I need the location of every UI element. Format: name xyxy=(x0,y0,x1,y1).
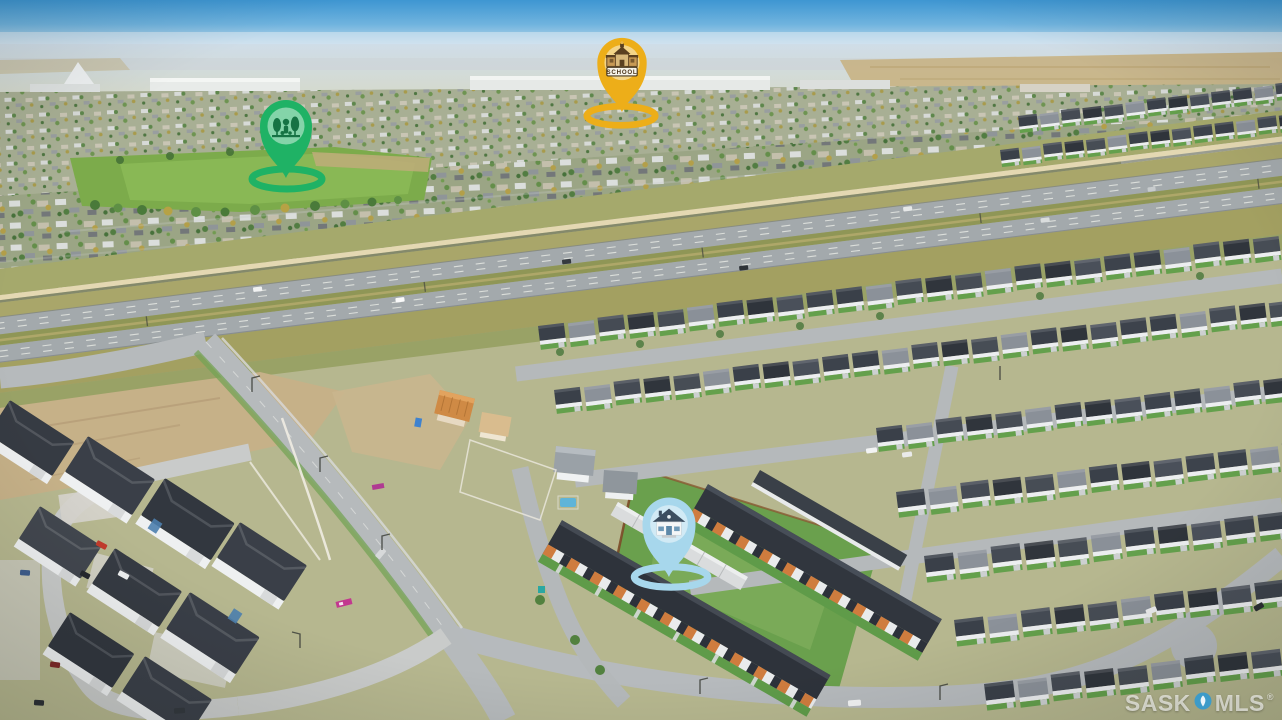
mls-logo-icon xyxy=(1194,692,1212,710)
watermark-registered: ® xyxy=(1267,693,1274,702)
school-pin-label: SCHOOL xyxy=(607,69,638,76)
watermark-suffix: MLS xyxy=(1215,692,1265,715)
aerial-scene: SCHOOL xyxy=(0,0,1282,720)
aerial-listing-photo: SCHOOL SASK MLS ® xyxy=(0,0,1282,720)
watermark-prefix: SASK xyxy=(1125,692,1191,715)
watermark-saskmls: SASK MLS ® xyxy=(1125,692,1274,715)
